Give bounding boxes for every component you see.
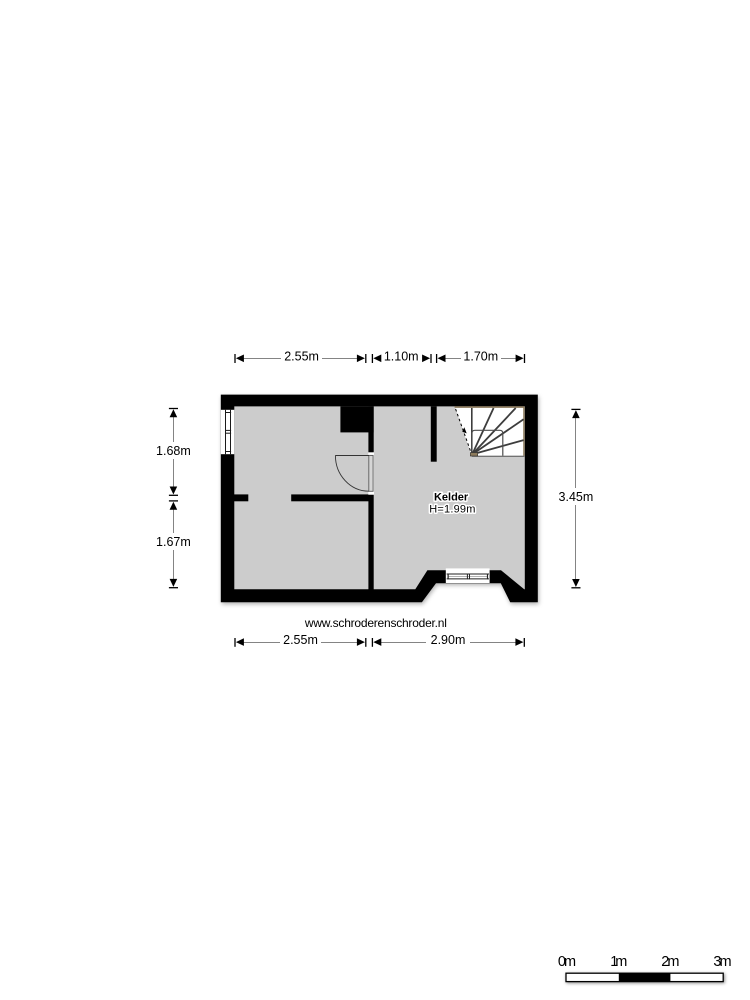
svg-text:1.70m: 1.70m (463, 349, 498, 363)
svg-text:www.schroderenschroder.nl: www.schroderenschroder.nl (304, 616, 447, 630)
svg-text:1m: 1m (610, 954, 627, 970)
svg-text:1.68m: 1.68m (156, 444, 191, 458)
svg-text:Kelder: Kelder (434, 491, 469, 503)
svg-text:1.10m: 1.10m (384, 349, 419, 363)
svg-text:3.45m: 3.45m (559, 490, 594, 504)
svg-text:2.90m: 2.90m (431, 633, 466, 647)
svg-text:H=1.99m: H=1.99m (429, 504, 475, 516)
svg-text:2m: 2m (661, 954, 679, 970)
svg-text:2.55m: 2.55m (283, 633, 318, 647)
svg-text:3m: 3m (713, 954, 731, 970)
svg-text:2.55m: 2.55m (284, 349, 319, 363)
svg-text:1.67m: 1.67m (156, 535, 191, 549)
svg-text:0m: 0m (558, 954, 576, 970)
